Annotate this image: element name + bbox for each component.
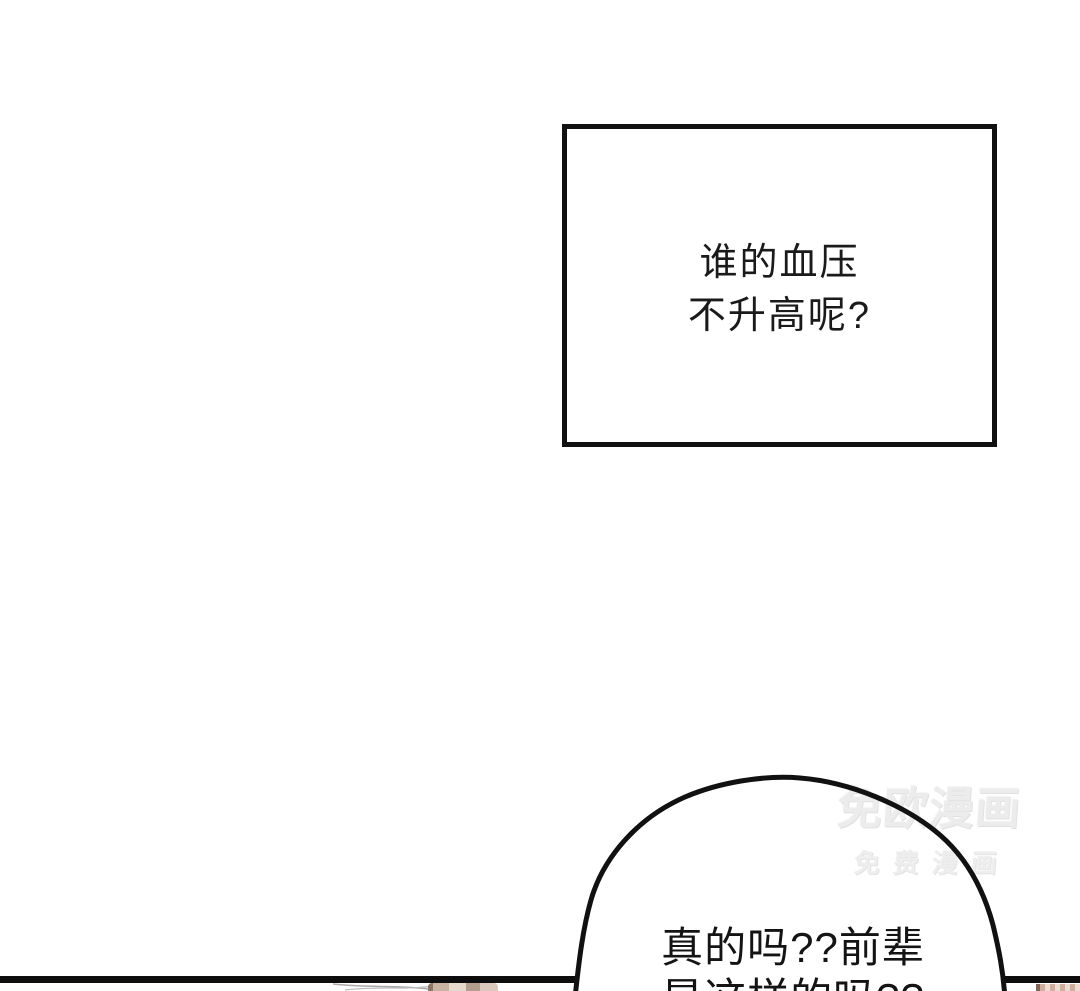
watermark: 免欧漫画 免费漫画 xyxy=(824,772,1032,880)
caption-line-1: 谁的血压 xyxy=(699,237,859,290)
speech-bubble-text: 真的吗??前辈 是这样的吗?? xyxy=(563,922,1023,991)
watermark-site-logo: 免欧漫画 xyxy=(827,772,1032,837)
bubble-line-1: 真的吗??前辈 xyxy=(563,922,1023,973)
caption-box: 谁的血压 不升高呢? xyxy=(562,124,997,447)
next-panel-stripes xyxy=(1036,984,1080,991)
watermark-subtitle: 免费漫画 xyxy=(824,843,1027,880)
comic-page: 谁的血压 不升高呢? 免欧漫画 免费漫画 真的吗??前辈 是这样的吗?? xyxy=(0,0,1080,991)
bubble-line-2: 是这样的吗?? xyxy=(563,973,1023,991)
caption-line-2: 不升高呢? xyxy=(688,290,871,343)
next-panel-artwork-blob xyxy=(428,983,498,991)
